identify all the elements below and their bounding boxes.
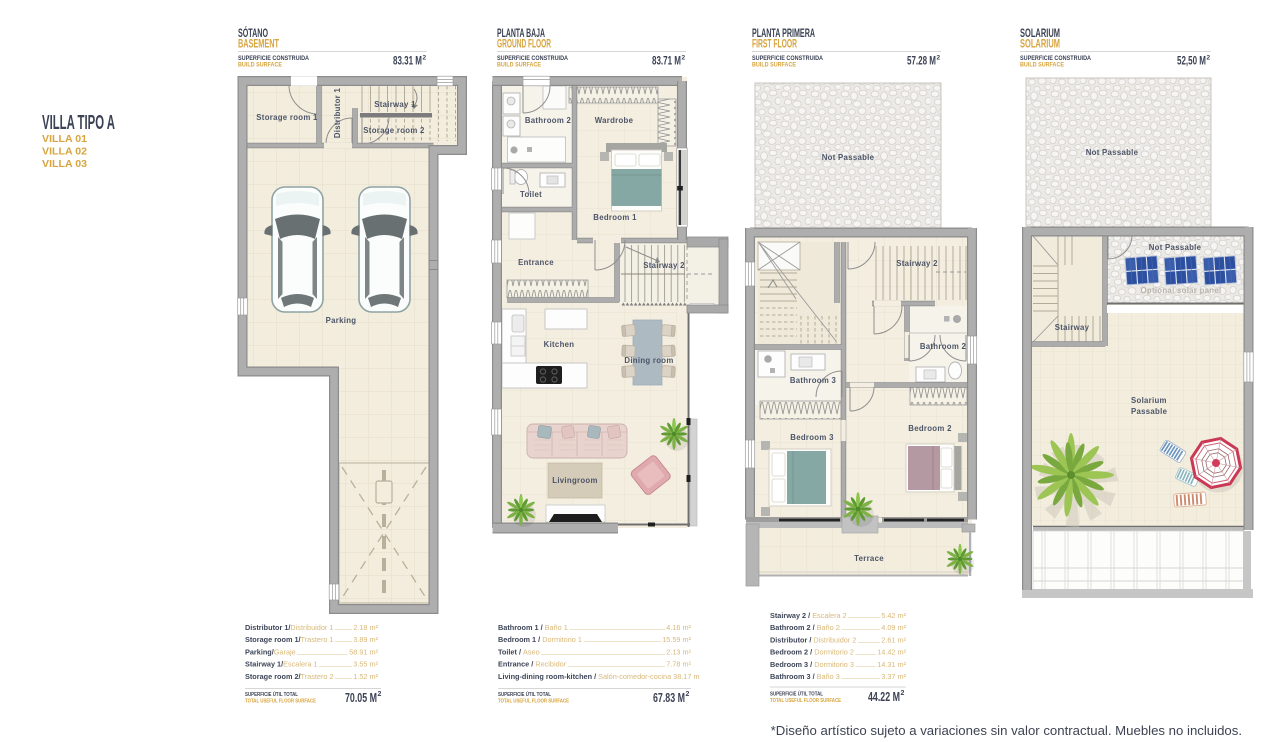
svg-text:Not Passable: Not Passable bbox=[822, 153, 875, 162]
svg-text:67.83 M: 67.83 M bbox=[653, 690, 685, 705]
svg-text:Optional solar panel: Optional solar panel bbox=[1141, 286, 1222, 295]
svg-text:2: 2 bbox=[686, 691, 690, 698]
svg-text:2: 2 bbox=[378, 691, 382, 698]
svg-text:SUPERFICIE ÚTIL TOTAL: SUPERFICIE ÚTIL TOTAL bbox=[245, 691, 298, 698]
svg-text:Dining room: Dining room bbox=[624, 356, 673, 365]
svg-text:Entrance: Entrance bbox=[518, 258, 554, 267]
svg-text:Bathroom 3: Bathroom 3 bbox=[790, 376, 837, 385]
svg-text:52,50 M: 52,50 M bbox=[1177, 56, 1206, 68]
svg-text:GROUND FLOOR: GROUND FLOOR bbox=[497, 39, 551, 51]
svg-text:Not Passable: Not Passable bbox=[1086, 148, 1139, 157]
svg-text:Stairway 2: Stairway 2 bbox=[896, 259, 938, 268]
svg-text:BUILD SURFACE: BUILD SURFACE bbox=[752, 62, 796, 69]
svg-text:Bedroom 3: Bedroom 3 bbox=[790, 433, 834, 442]
svg-text:VILLA TIPO A: VILLA TIPO A bbox=[42, 112, 115, 134]
svg-text:44.22 M: 44.22 M bbox=[868, 689, 900, 704]
svg-text:Passable: Passable bbox=[1131, 407, 1168, 416]
svg-text:Not Passable: Not Passable bbox=[1149, 243, 1202, 252]
svg-text:Stairway 1: Stairway 1 bbox=[374, 100, 416, 109]
svg-text:Stairway 2: Stairway 2 bbox=[643, 261, 685, 270]
svg-text:Livingroom: Livingroom bbox=[552, 476, 597, 485]
svg-text:Bedroom 2: Bedroom 2 bbox=[908, 424, 952, 433]
svg-text:Kitchen: Kitchen bbox=[544, 340, 575, 349]
svg-text:SUPERFICIE ÚTIL TOTAL: SUPERFICIE ÚTIL TOTAL bbox=[498, 691, 551, 698]
svg-text:BUILD SURFACE: BUILD SURFACE bbox=[1020, 62, 1064, 69]
svg-text:Toilet: Toilet bbox=[520, 190, 542, 199]
svg-text:TOTAL USEFUL FLOOR SURFACE: TOTAL USEFUL FLOOR SURFACE bbox=[245, 699, 316, 705]
svg-text:SOLARIUM: SOLARIUM bbox=[1020, 39, 1060, 51]
svg-text:57.28 M: 57.28 M bbox=[907, 56, 936, 68]
svg-text:BASEMENT: BASEMENT bbox=[238, 39, 279, 51]
svg-text:2: 2 bbox=[901, 690, 905, 697]
svg-text:Bathroom 2: Bathroom 2 bbox=[920, 342, 967, 351]
svg-text:2: 2 bbox=[1207, 55, 1211, 62]
svg-text:VILLA 01: VILLA 01 bbox=[42, 134, 87, 145]
svg-text:FIRST FLOOR: FIRST FLOOR bbox=[752, 39, 797, 51]
svg-text:SUPERFICIE ÚTIL TOTAL: SUPERFICIE ÚTIL TOTAL bbox=[770, 691, 823, 698]
svg-text:2: 2 bbox=[423, 55, 427, 62]
svg-text:Storage room 2: Storage room 2 bbox=[363, 126, 425, 135]
svg-text:TOTAL USEFUL FLOOR SURFACE: TOTAL USEFUL FLOOR SURFACE bbox=[498, 699, 569, 705]
svg-text:Terrace: Terrace bbox=[854, 554, 884, 563]
svg-text:TOTAL USEFUL FLOOR SURFACE: TOTAL USEFUL FLOOR SURFACE bbox=[770, 698, 841, 704]
svg-text:70.05 M: 70.05 M bbox=[345, 690, 377, 705]
svg-text:Parking: Parking bbox=[326, 316, 357, 325]
svg-text:Storage room 1: Storage room 1 bbox=[256, 113, 318, 122]
svg-text:2: 2 bbox=[682, 55, 686, 62]
svg-text:Wardrobe: Wardrobe bbox=[595, 116, 634, 125]
svg-text:BUILD SURFACE: BUILD SURFACE bbox=[238, 62, 282, 69]
svg-text:BUILD SURFACE: BUILD SURFACE bbox=[497, 62, 541, 69]
svg-text:Bedroom 1: Bedroom 1 bbox=[593, 213, 637, 222]
svg-text:VILLA 02: VILLA 02 bbox=[42, 147, 87, 158]
svg-text:VILLA 03: VILLA 03 bbox=[42, 159, 87, 170]
svg-text:83.31 M: 83.31 M bbox=[393, 56, 422, 68]
svg-text:Stairway: Stairway bbox=[1055, 323, 1090, 332]
svg-text:Bathroom 2: Bathroom 2 bbox=[525, 116, 572, 125]
svg-text:Distributor 1: Distributor 1 bbox=[333, 88, 342, 139]
svg-text:83.71 M: 83.71 M bbox=[652, 56, 681, 68]
svg-text:2: 2 bbox=[937, 55, 941, 62]
svg-text:Solarium: Solarium bbox=[1131, 396, 1167, 405]
